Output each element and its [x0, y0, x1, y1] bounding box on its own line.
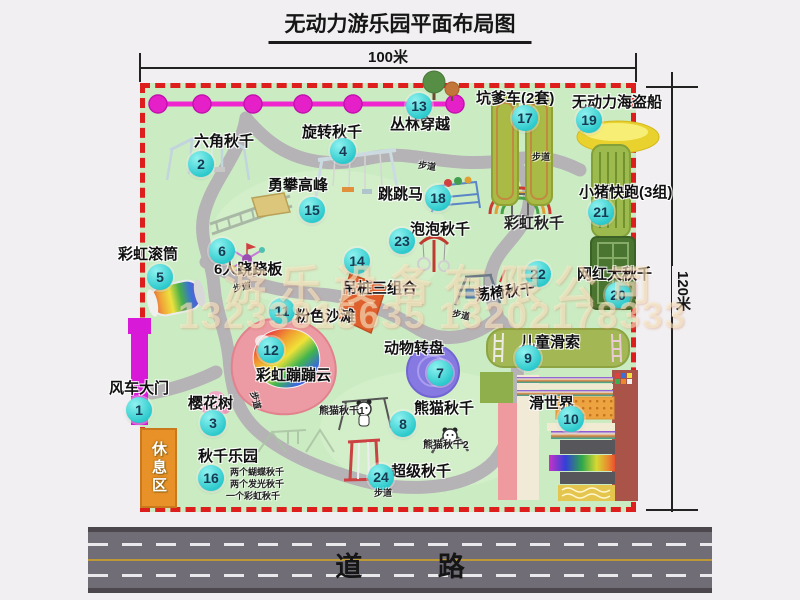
rest-area-label: 休息区 — [148, 441, 169, 495]
dimension-right-label: 120米 — [672, 266, 693, 316]
park-area — [140, 83, 636, 512]
road-label: 道 路 — [88, 545, 712, 584]
road: 道 路 — [88, 527, 712, 593]
dimension-tick — [646, 509, 698, 511]
dimension-tick — [646, 86, 698, 88]
park-layout-map: 无动力游乐园平面布局图 100米 120米 — [0, 0, 800, 600]
page-title: 无动力游乐园平面布局图 — [269, 8, 532, 44]
dimension-tick — [139, 53, 141, 82]
dimension-line-top — [140, 67, 636, 69]
rest-area: 休息区 — [140, 428, 177, 508]
dimension-tick — [635, 53, 637, 82]
dimension-top-label: 100米 — [362, 46, 414, 67]
